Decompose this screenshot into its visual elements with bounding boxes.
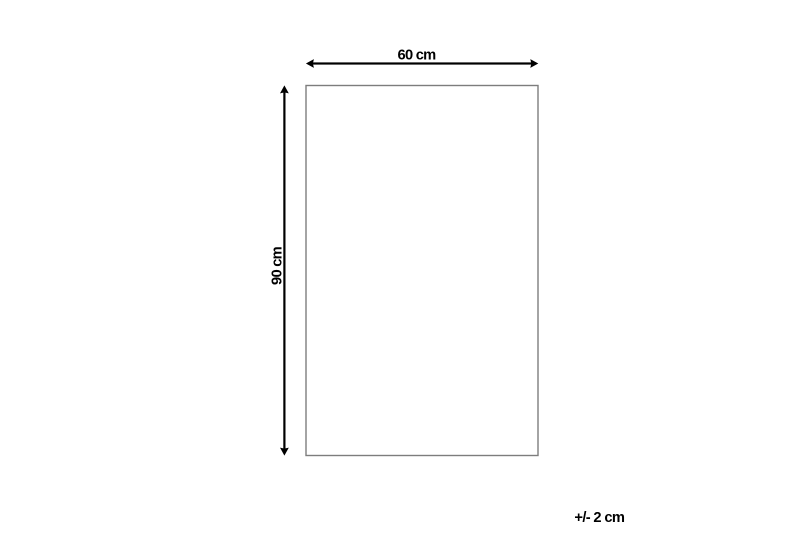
- svg-text:90 cm: 90 cm: [269, 246, 285, 285]
- svg-text:60 cm: 60 cm: [398, 48, 437, 64]
- svg-text:+/- 2 cm: +/- 2 cm: [574, 510, 624, 526]
